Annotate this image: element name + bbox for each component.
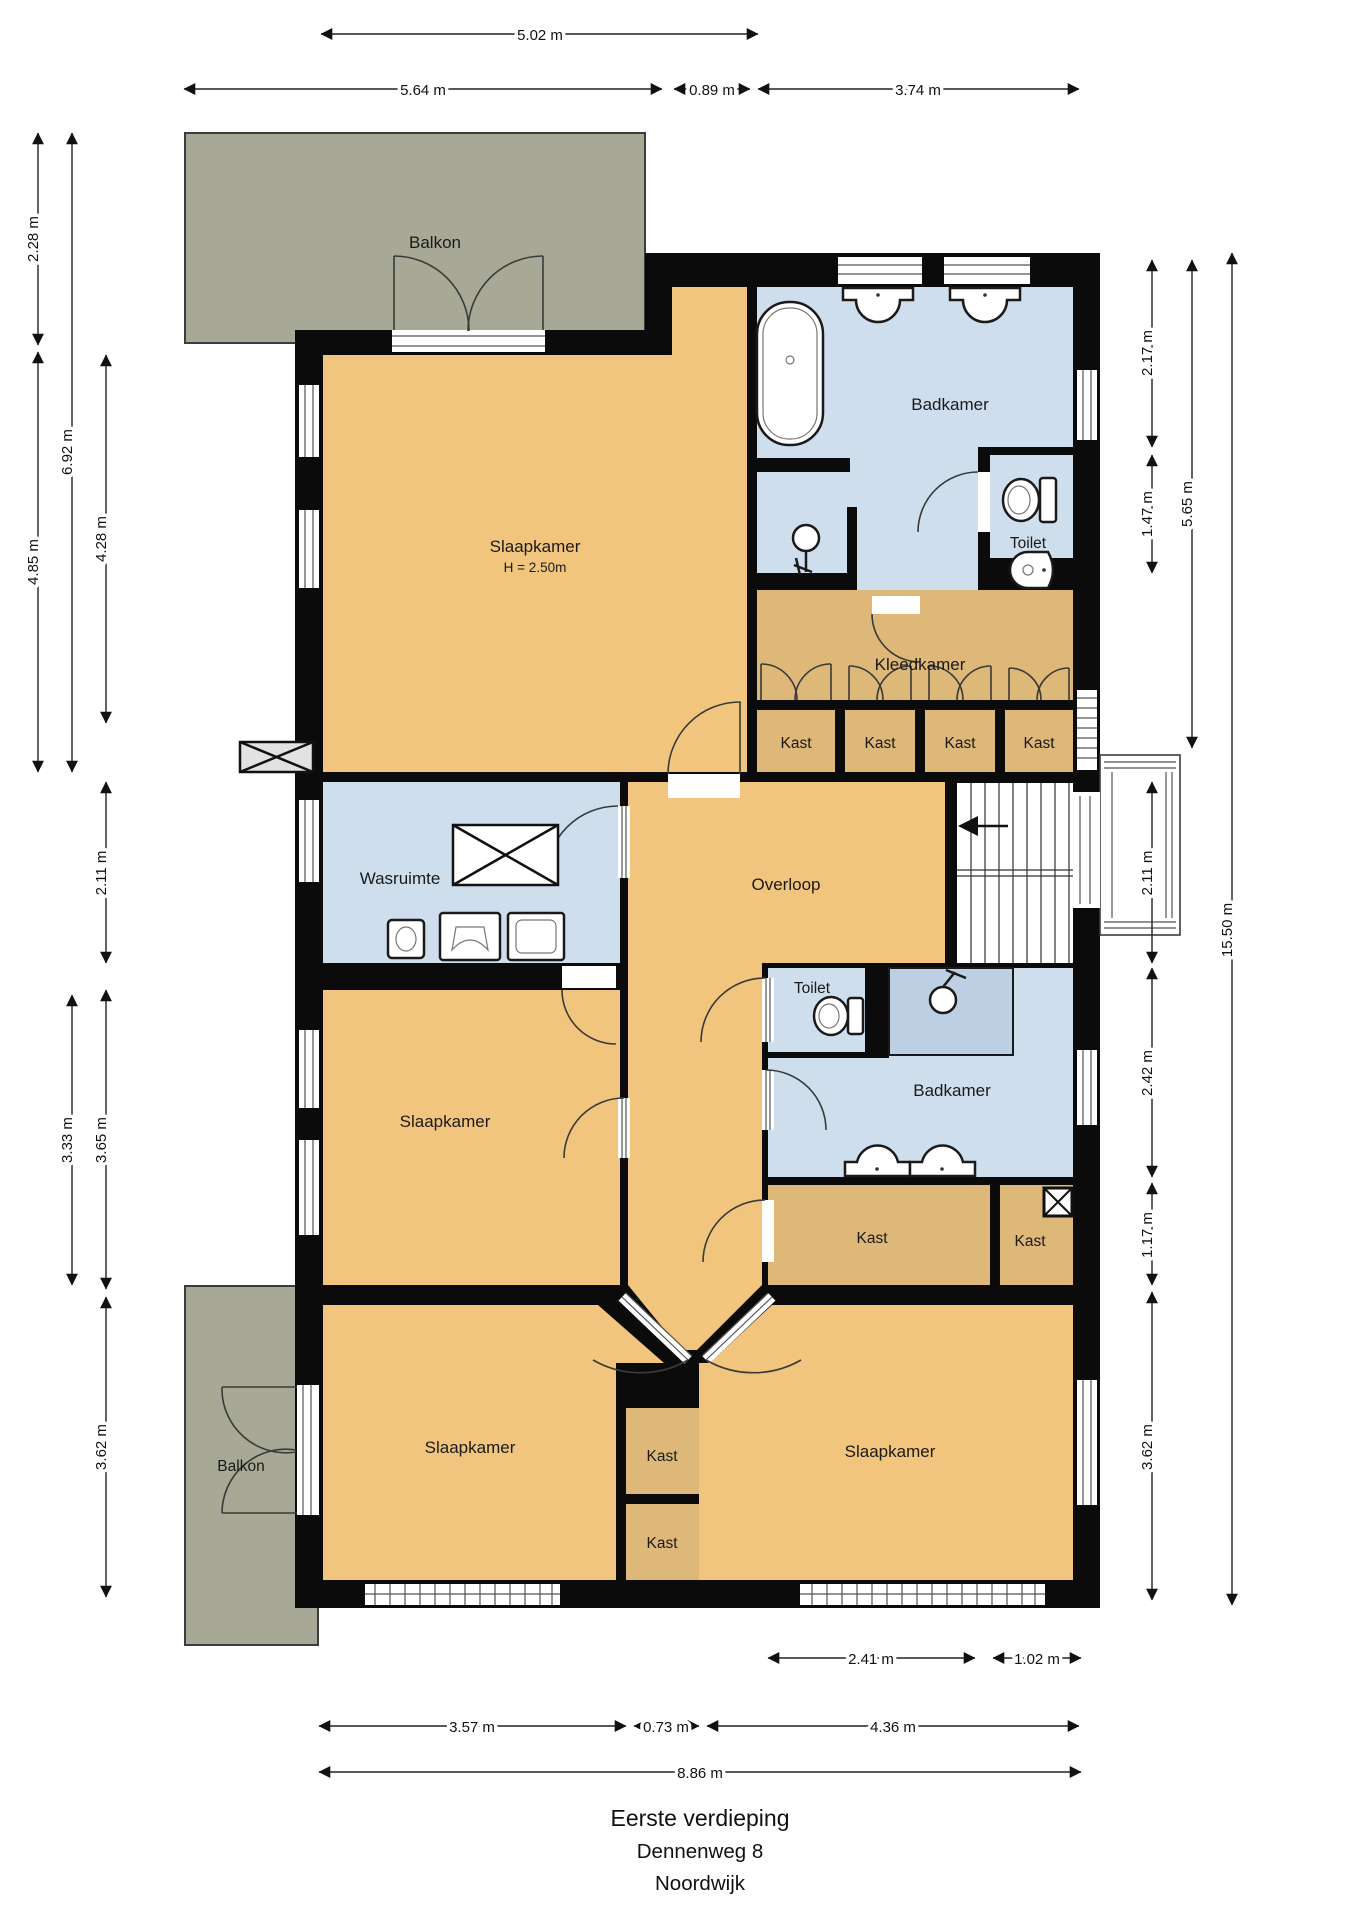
dim-top-4: 3.74 m bbox=[895, 82, 941, 99]
dimensions-top: 5.02 m 5.64 m 0.89 m 3.74 m bbox=[184, 27, 1079, 99]
dim-top-3: 0.89 m bbox=[689, 82, 735, 99]
label-kast-6: Kast bbox=[1014, 1233, 1046, 1250]
label-kast-2: Kast bbox=[864, 735, 896, 752]
dim-bottom-1: 2.41 m bbox=[848, 1651, 894, 1668]
dim-right-2: 1.47 m bbox=[1139, 491, 1156, 537]
stairs bbox=[957, 783, 1073, 963]
label-wasruimte: Wasruimte bbox=[360, 869, 441, 888]
label-slaapkamer-2: Slaapkamer bbox=[400, 1112, 491, 1131]
dim-left-1: 2.28 m bbox=[25, 216, 42, 262]
label-kast-7: Kast bbox=[646, 1448, 678, 1465]
dim-right-6: 1.17 m bbox=[1139, 1212, 1156, 1258]
dimensions-bottom: 2.41 m 1.02 m 3.57 m 0.73 m 4.36 m 8.86 … bbox=[319, 1651, 1081, 1782]
label-slaapkamer-1: Slaapkamer bbox=[490, 537, 581, 556]
shaft-x-icon bbox=[240, 742, 313, 772]
label-kast-4: Kast bbox=[1023, 735, 1055, 752]
label-kleedkamer: Kleedkamer bbox=[875, 655, 966, 674]
dim-bottom-2: 1.02 m bbox=[1014, 1651, 1060, 1668]
dim-left-3: 4.85 m bbox=[25, 539, 42, 585]
stair-bay-opening bbox=[1073, 792, 1100, 908]
label-slaapkamer-3: Slaapkamer bbox=[425, 1438, 516, 1457]
laundry-sink-icon bbox=[388, 920, 424, 958]
dim-bottom-5: 4.36 m bbox=[870, 1719, 916, 1736]
dim-right-7: 3.62 m bbox=[1139, 1424, 1156, 1470]
label-balkon-bottom: Balkon bbox=[217, 1458, 264, 1475]
room-slaapkamer-2 bbox=[323, 990, 620, 1285]
dim-left-8: 3.62 m bbox=[93, 1424, 110, 1470]
dim-left-5: 2.11 m bbox=[93, 851, 110, 896]
label-kast-3: Kast bbox=[944, 735, 976, 752]
dim-top-1: 5.02 m bbox=[517, 27, 563, 44]
label-badkamer-2: Badkamer bbox=[913, 1081, 991, 1100]
washer-icon bbox=[440, 913, 500, 960]
label-kast-8: Kast bbox=[646, 1535, 678, 1552]
dim-right-3: 5.65 m bbox=[1179, 481, 1196, 527]
dim-bottom-6: 8.86 m bbox=[677, 1765, 723, 1782]
label-overloop: Overloop bbox=[752, 875, 821, 894]
floorplan-page: Balkon Slaapkamer H = 2.50m Badkamer Toi… bbox=[0, 0, 1358, 1920]
label-toilet-2: Toilet bbox=[794, 980, 831, 997]
dim-top-2: 5.64 m bbox=[400, 82, 446, 99]
room-slaapkamer-1 bbox=[323, 287, 747, 772]
label-slaapkamer-1-height: H = 2.50m bbox=[504, 560, 567, 575]
shaft-x-icon-3 bbox=[1044, 1188, 1072, 1216]
dim-left-4: 4.28 m bbox=[93, 516, 110, 562]
title-street: Dennenweg 8 bbox=[637, 1840, 764, 1863]
toilet-icon-2 bbox=[814, 997, 863, 1035]
bidet-icon bbox=[1010, 552, 1053, 588]
label-toilet-1: Toilet bbox=[1010, 535, 1047, 552]
dim-left-6: 3.33 m bbox=[59, 1117, 76, 1163]
label-slaapkamer-4: Slaapkamer bbox=[845, 1442, 936, 1461]
dim-left-2: 6.92 m bbox=[59, 429, 76, 475]
bathtub-icon bbox=[757, 302, 823, 445]
dim-left-7: 3.65 m bbox=[93, 1117, 110, 1163]
dim-bottom-3: 3.57 m bbox=[449, 1719, 495, 1736]
dim-right-1: 2.17 m bbox=[1139, 330, 1156, 376]
title-floor: Eerste verdieping bbox=[611, 1805, 790, 1831]
stair-bay-window bbox=[1100, 755, 1180, 935]
dim-bottom-4: 0.73 m bbox=[643, 1719, 689, 1736]
title-city: Noordwijk bbox=[655, 1872, 746, 1895]
floor-plan: Balkon Slaapkamer H = 2.50m Badkamer Toi… bbox=[0, 0, 1358, 1920]
label-balkon-top: Balkon bbox=[409, 233, 461, 252]
label-kast-1: Kast bbox=[780, 735, 812, 752]
dryer-icon bbox=[508, 913, 564, 960]
dimensions-left: 2.28 m 6.92 m 4.85 m 4.28 m 2.11 m 3.33 … bbox=[25, 133, 110, 1597]
toilet-icon bbox=[1003, 478, 1056, 522]
dim-right-4: 2.11 m bbox=[1139, 851, 1156, 896]
dim-right-8: 15.50 m bbox=[1219, 903, 1236, 957]
label-kast-5: Kast bbox=[856, 1230, 888, 1247]
label-badkamer-1: Badkamer bbox=[911, 395, 989, 414]
shaft-x-icon-2 bbox=[453, 825, 558, 885]
title-block: Eerste verdieping Dennenweg 8 Noordwijk bbox=[611, 1805, 790, 1895]
dim-right-5: 2.42 m bbox=[1139, 1050, 1156, 1096]
